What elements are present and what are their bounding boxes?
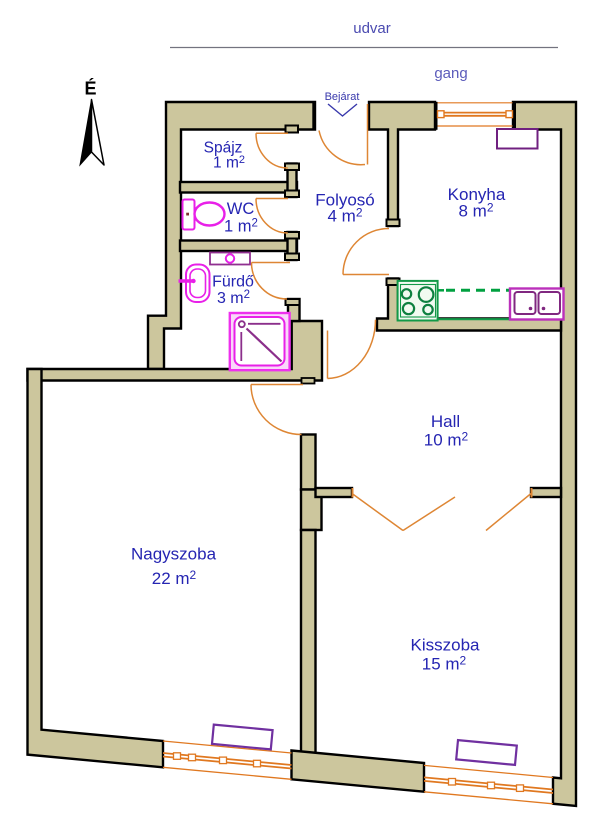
svg-text:Hall: Hall bbox=[431, 412, 460, 431]
svg-text:Nagyszoba: Nagyszoba bbox=[131, 545, 217, 564]
svg-text:Kisszoba: Kisszoba bbox=[411, 636, 481, 655]
svg-text:udvar: udvar bbox=[353, 20, 391, 37]
svg-text:Fürdő: Fürdő bbox=[212, 274, 254, 291]
svg-text:É: É bbox=[84, 78, 96, 99]
svg-text:Bejárat: Bejárat bbox=[325, 91, 360, 103]
svg-text:gang: gang bbox=[434, 65, 467, 82]
svg-text:WC: WC bbox=[227, 200, 255, 218]
